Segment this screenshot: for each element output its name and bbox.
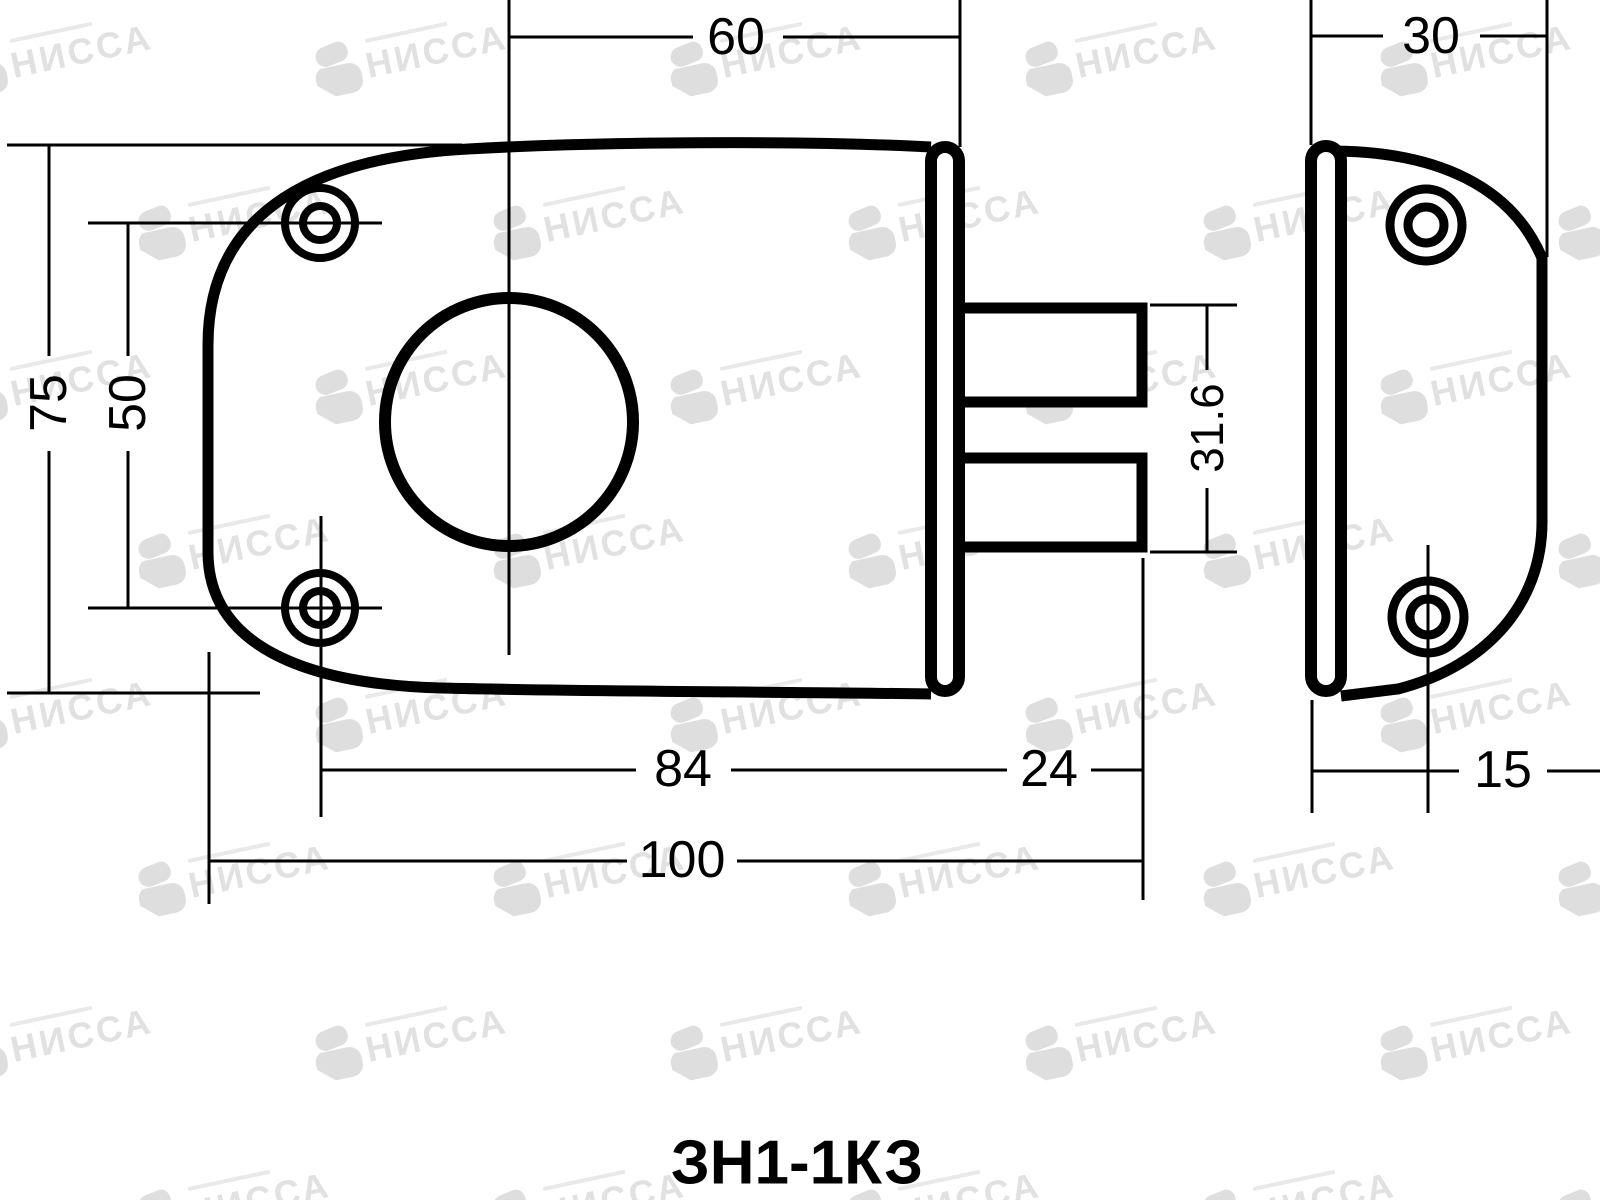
drawing-page: НИССАНИССАНИССАНИССАНИССАНИССАНИССАНИССА…	[0, 0, 1600, 1200]
bolt-prong-top	[959, 308, 1142, 402]
lock-body-outline	[208, 143, 931, 694]
dim-15-label: 15	[1474, 741, 1532, 799]
model-caption: ЗН1-1КЗ	[671, 1129, 923, 1198]
dimension-lines	[49, 36, 1600, 861]
lock-technical-drawing: 60 30 75 50 31.6 84 24 100 15 ЗН1-1КЗ	[0, 0, 1600, 1200]
strike-plate-outline	[1330, 151, 1542, 696]
dim-100-label: 100	[639, 831, 726, 889]
strike-plate-face	[1311, 146, 1341, 691]
dim-30-label: 30	[1402, 7, 1460, 65]
dim-60-label: 60	[707, 8, 765, 66]
faceplate	[931, 147, 959, 691]
plate-screw-hole-top-inner	[1408, 207, 1444, 243]
bolt-prong-bottom	[959, 458, 1142, 547]
dim-24-label: 24	[1020, 740, 1078, 798]
dim-31-6-label: 31.6	[1181, 383, 1233, 473]
dim-75-label: 75	[20, 374, 78, 432]
dim-84-label: 84	[654, 740, 712, 798]
dim-50-label: 50	[99, 374, 157, 432]
front-view	[208, 143, 1142, 694]
plate-screw-hole-top-outer	[1390, 189, 1462, 261]
